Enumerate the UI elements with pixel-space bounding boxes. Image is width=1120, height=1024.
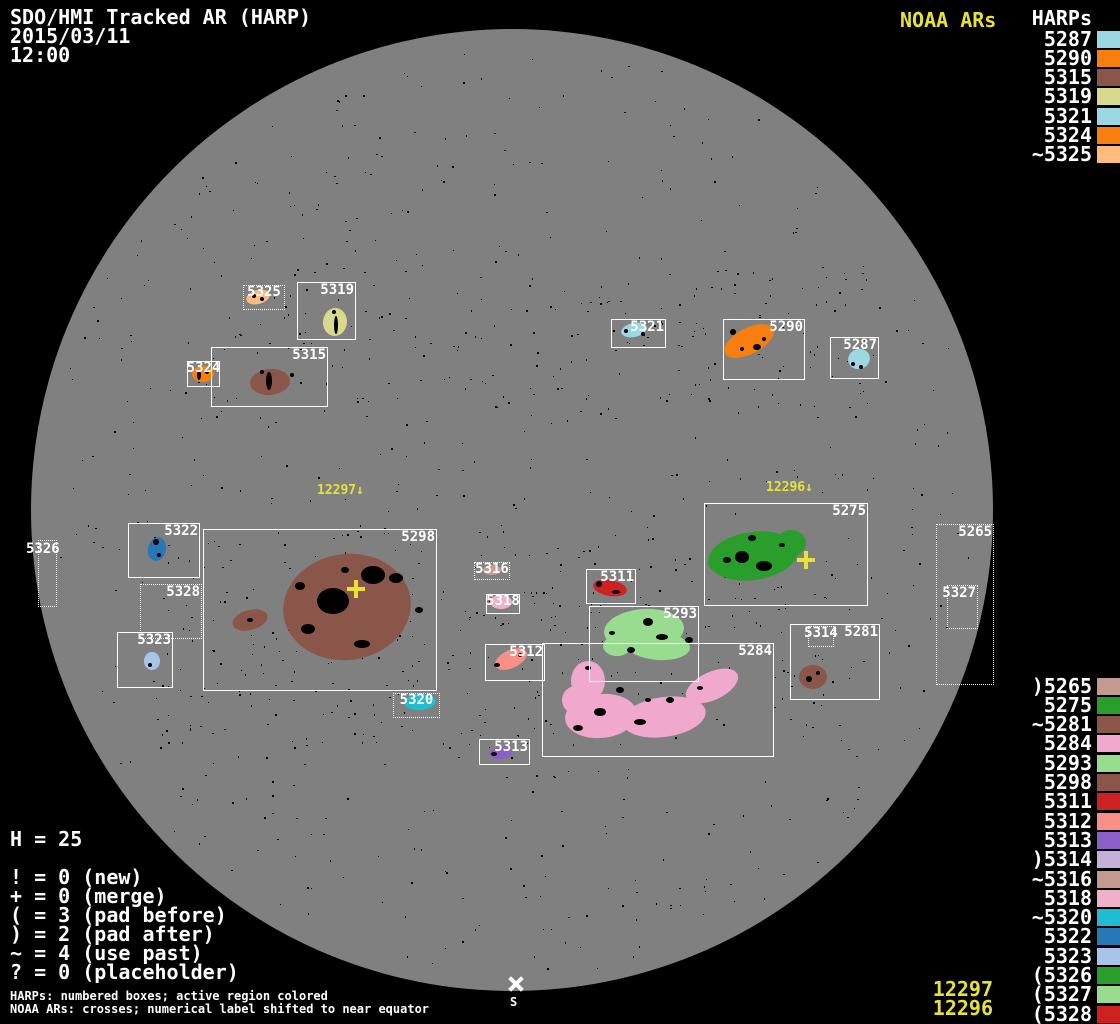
harp-box-label: 5315 xyxy=(292,348,326,362)
harp-box-5298: 5298 xyxy=(203,529,437,691)
legend-placeholder: ? = 0 (placeholder) xyxy=(10,963,239,982)
harp-list-row: 5319 xyxy=(0,87,1120,106)
harp-color-swatch xyxy=(1097,871,1120,888)
harp-box-label: 5293 xyxy=(663,607,697,621)
harp-box-label: 5275 xyxy=(832,504,866,518)
harp-color-swatch xyxy=(1097,813,1120,830)
harp-box-label: 5318 xyxy=(486,594,520,608)
harp-box-label: 5298 xyxy=(401,530,435,544)
harp-color-swatch xyxy=(1097,986,1120,1003)
harp-color-swatch xyxy=(1097,928,1120,945)
harp-box-label: 5324 xyxy=(187,361,221,375)
harp-box-5325: 5325 xyxy=(243,285,285,310)
noaa-cross-icon xyxy=(347,580,365,598)
harp-box-5326: 5326 xyxy=(38,540,57,607)
harp-box-5315: 5315 xyxy=(211,347,328,407)
harp-box-label: 5290 xyxy=(769,320,803,334)
harp-box-5290: 5290 xyxy=(723,319,805,380)
harp-box-5327: 5327 xyxy=(947,585,978,629)
harp-box-5311: 5311 xyxy=(586,569,636,604)
south-pole-label: S xyxy=(510,996,517,1008)
harp-color-swatch xyxy=(1097,88,1120,105)
harp-color-swatch xyxy=(1097,774,1120,791)
footnote-harps: HARPs: numbered boxes; active region col… xyxy=(10,990,328,1002)
harp-color-swatch xyxy=(1097,69,1120,86)
harp-list-row: )5314 xyxy=(0,850,1120,869)
harp-list-row: 5290 xyxy=(0,49,1120,68)
harp-box-label: 5323 xyxy=(137,633,171,647)
south-pole-x-icon xyxy=(506,974,526,994)
harp-color-swatch xyxy=(1097,793,1120,810)
harp-color-swatch xyxy=(1097,697,1120,714)
harp-color-swatch xyxy=(1097,832,1120,849)
harp-color-swatch xyxy=(1097,50,1120,67)
harp-list-row: 5298 xyxy=(0,773,1120,792)
harp-color-swatch xyxy=(1097,1006,1120,1023)
harp-box-label: 5327 xyxy=(942,586,976,600)
noaa-cross-icon xyxy=(797,551,815,569)
harp-color-swatch xyxy=(1097,890,1120,907)
harp-box-label: 5313 xyxy=(494,740,528,754)
harp-box-label: 5281 xyxy=(844,625,878,639)
harp-box-label: 5321 xyxy=(630,320,664,334)
harp-color-swatch xyxy=(1097,31,1120,48)
footnote-noaa: NOAA ARs: crosses; numerical label shift… xyxy=(10,1003,429,1015)
harp-box-label: 5325 xyxy=(247,285,281,299)
harp-box-5275: 5275 xyxy=(704,503,868,606)
harp-box-label: 5284 xyxy=(738,644,772,658)
harp-color-swatch xyxy=(1097,146,1120,163)
harp-color-swatch xyxy=(1097,108,1120,125)
harp-list-row: 5312 xyxy=(0,812,1120,831)
harp-box-5316: 5316 xyxy=(474,562,510,580)
harp-count-line: H = 25 xyxy=(10,830,82,849)
harp-box-5322: 5322 xyxy=(128,523,200,578)
harp-box-label: 5311 xyxy=(600,570,634,584)
harp-list-row: 5287 xyxy=(0,30,1120,49)
harp-box-5321: 5321 xyxy=(611,319,666,348)
harp-color-swatch xyxy=(1097,127,1120,144)
harp-box-label: 5319 xyxy=(320,283,354,297)
harp-color-swatch xyxy=(1097,851,1120,868)
harp-box-label: 5320 xyxy=(400,693,434,707)
harp-color-swatch xyxy=(1097,948,1120,965)
harp-color-swatch xyxy=(1097,967,1120,984)
harp-box-5314: 5314 xyxy=(808,626,834,647)
noaa-cross-label: 12296↓ xyxy=(766,481,813,494)
harp-color-swatch xyxy=(1097,678,1120,695)
harp-color-swatch xyxy=(1097,735,1120,752)
harp-color-swatch xyxy=(1097,755,1120,772)
harp-list-row: 5321 xyxy=(0,107,1120,126)
harp-box-label: 5322 xyxy=(164,524,198,538)
harp-color-swatch xyxy=(1097,909,1120,926)
harp-viewer: 5325531953155324532152905287532253265328… xyxy=(0,0,1120,1024)
harp-number-label: ~5325 xyxy=(1032,145,1092,164)
harps-header: HARPs xyxy=(1032,9,1092,28)
harp-box-5287: 5287 xyxy=(830,337,879,379)
harp-box-5323: 5323 xyxy=(117,632,173,688)
harp-box-label: 5316 xyxy=(475,562,509,576)
harp-box-5284: 5284 xyxy=(542,643,774,757)
noaa-number-12296: 12296 xyxy=(933,999,993,1018)
harp-box-5324: 5324 xyxy=(187,361,220,387)
harp-box-5328: 5328 xyxy=(140,584,202,639)
harp-list-row: 5311 xyxy=(0,792,1120,811)
harp-box-label: 5326 xyxy=(26,542,60,556)
harp-list-row: ~5325 xyxy=(0,145,1120,164)
harp-list-row: 5313 xyxy=(0,831,1120,850)
harp-box-label: 5312 xyxy=(509,645,543,659)
harp-box-5312: 5312 xyxy=(485,644,545,681)
noaa-ars-header: NOAA ARs xyxy=(900,11,996,30)
harp-number-label: (5328 xyxy=(1032,1005,1092,1024)
harp-box-5319: 5319 xyxy=(297,282,356,340)
harp-box-5320: 5320 xyxy=(393,693,440,718)
harp-box-label: 5314 xyxy=(804,626,838,640)
harp-box-5318: 5318 xyxy=(486,594,520,614)
harp-color-swatch xyxy=(1097,716,1120,733)
harp-box-label: 5328 xyxy=(166,585,200,599)
noaa-cross-label: 12297↓ xyxy=(317,484,364,497)
harp-list-row: 5315 xyxy=(0,68,1120,87)
harp-list-row: ~5316 xyxy=(0,870,1120,889)
harp-box-5313: 5313 xyxy=(479,739,530,765)
harp-list-row: 5324 xyxy=(0,126,1120,145)
harp-box-label: 5287 xyxy=(843,338,877,352)
harp-box-label: 5265 xyxy=(958,525,992,539)
